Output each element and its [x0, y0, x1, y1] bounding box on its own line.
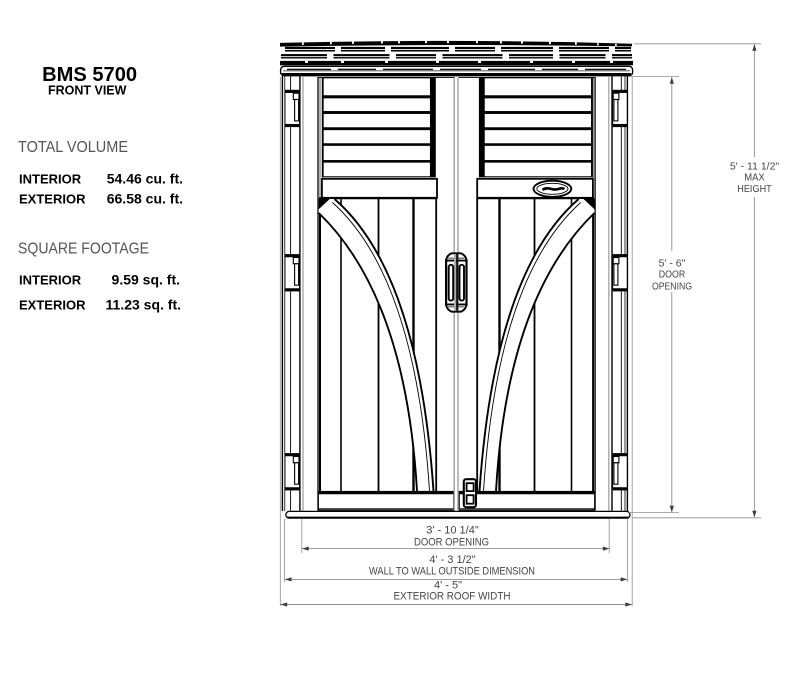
svg-text:INTERIOR: INTERIOR — [19, 172, 82, 187]
svg-text:MAX: MAX — [744, 172, 765, 184]
svg-text:66.58 cu. ft.: 66.58 cu. ft. — [107, 191, 183, 207]
svg-text:HEIGHT: HEIGHT — [737, 183, 772, 195]
svg-text:DOOR: DOOR — [659, 269, 686, 281]
svg-text:OPENING: OPENING — [652, 280, 692, 292]
svg-text:EXTERIOR ROOF WIDTH: EXTERIOR ROOF WIDTH — [394, 591, 511, 603]
svg-text:5' - 6": 5' - 6" — [659, 257, 686, 269]
svg-text:TOTAL VOLUME: TOTAL VOLUME — [18, 139, 128, 156]
svg-text:11.23 sq. ft.: 11.23 sq. ft. — [106, 297, 181, 313]
svg-text:INTERIOR: INTERIOR — [19, 273, 82, 288]
svg-text:EXTERIOR: EXTERIOR — [19, 298, 86, 313]
svg-text:3' - 10 1/4": 3' - 10 1/4" — [426, 525, 479, 537]
svg-text:4' - 5": 4' - 5" — [434, 580, 462, 592]
svg-text:9.59 sq. ft.: 9.59 sq. ft. — [112, 272, 180, 288]
svg-text:FRONT VIEW: FRONT VIEW — [48, 83, 127, 98]
svg-text:SQUARE FOOTAGE: SQUARE FOOTAGE — [18, 241, 149, 258]
svg-text:DOOR OPENING: DOOR OPENING — [414, 537, 489, 549]
svg-text:WALL TO WALL OUTSIDE DIMENSION: WALL TO WALL OUTSIDE DIMENSION — [369, 566, 535, 578]
svg-text:EXTERIOR: EXTERIOR — [19, 192, 86, 207]
svg-text:4' - 3 1/2": 4' - 3 1/2" — [429, 554, 475, 566]
svg-text:54.46 cu. ft.: 54.46 cu. ft. — [107, 171, 183, 187]
